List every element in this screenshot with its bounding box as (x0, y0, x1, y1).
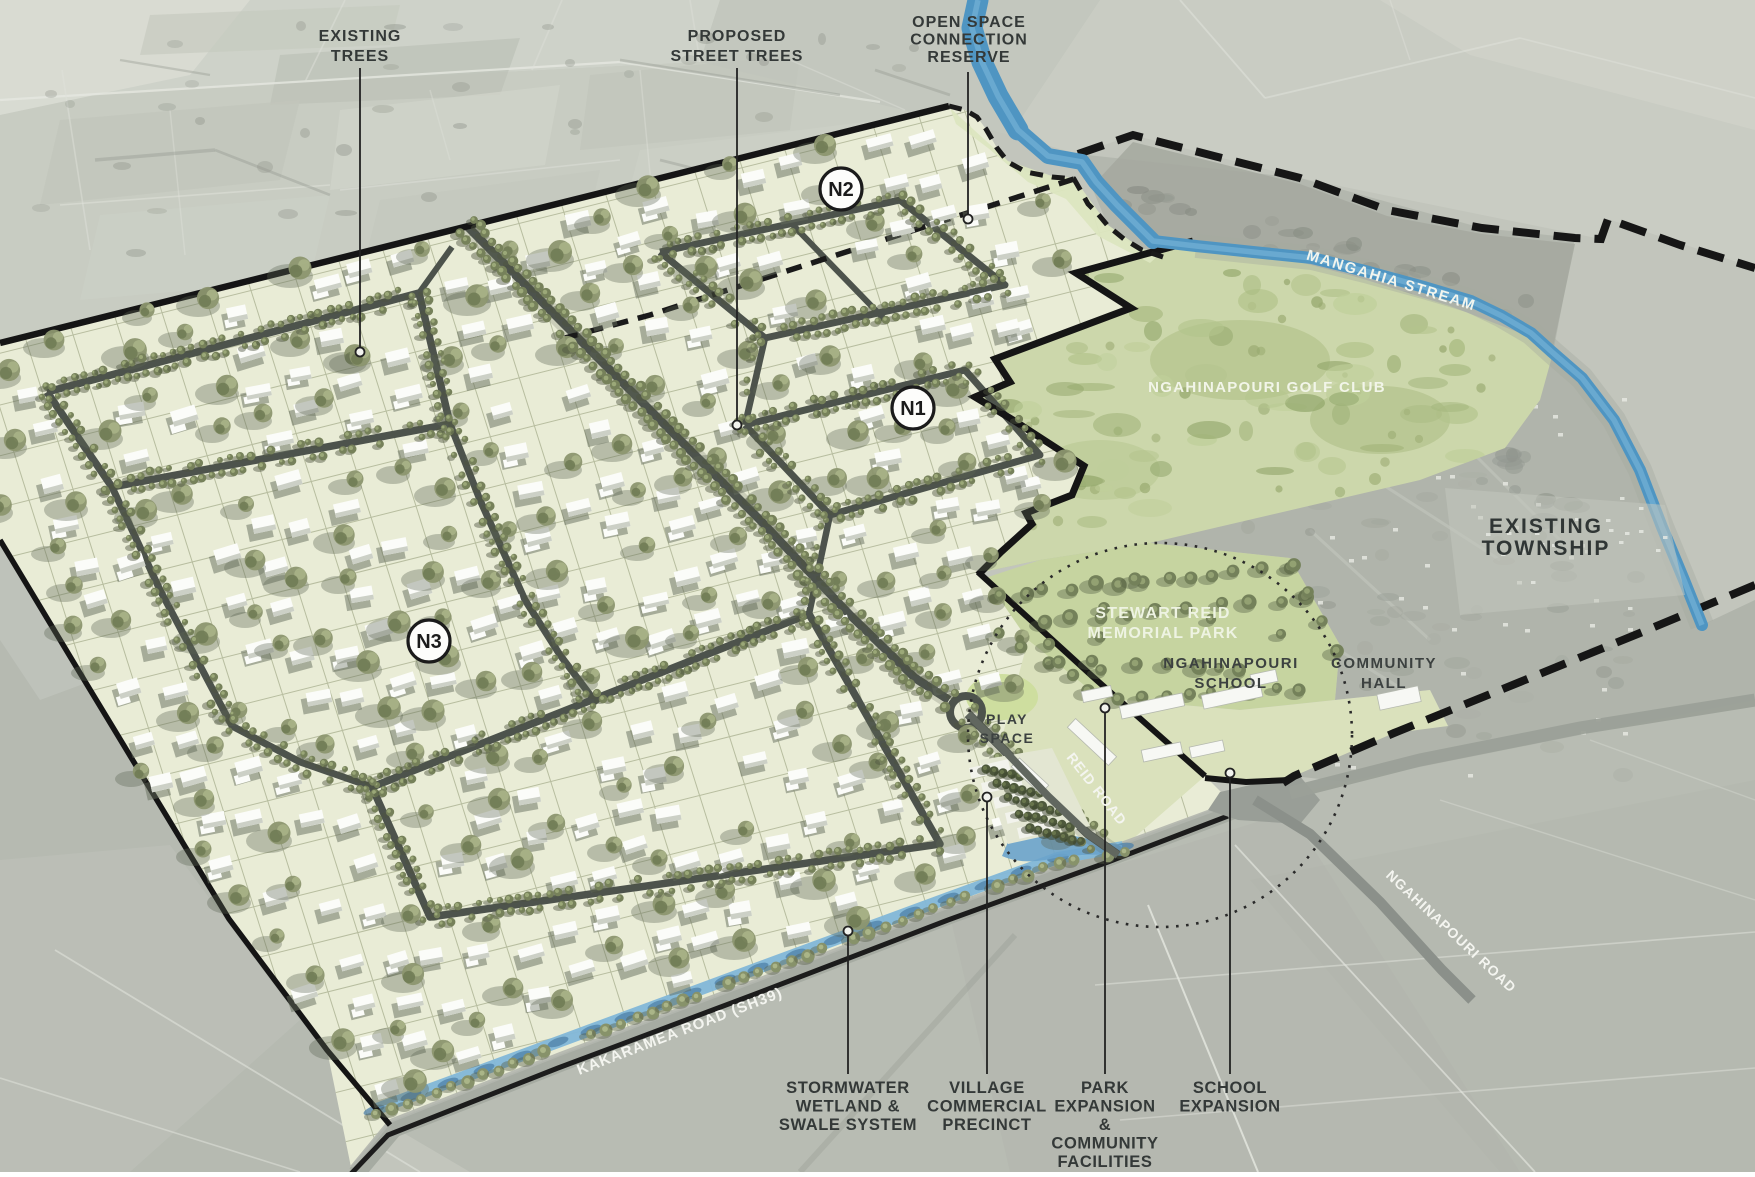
svg-text:EXISTING: EXISTING (319, 28, 402, 45)
svg-text:EXPANSION: EXPANSION (1179, 1098, 1280, 1116)
svg-text:NGAHINAPOURI GOLF CLUB: NGAHINAPOURI GOLF CLUB (1148, 379, 1386, 396)
svg-text:PRECINCT: PRECINCT (942, 1116, 1031, 1134)
svg-text:MEMORIAL PARK: MEMORIAL PARK (1087, 625, 1238, 642)
svg-text:VILLAGE: VILLAGE (949, 1079, 1025, 1097)
svg-text:HALL: HALL (1361, 675, 1407, 692)
svg-text:TREES: TREES (331, 48, 389, 65)
svg-text:SWALE SYSTEM: SWALE SYSTEM (779, 1116, 917, 1134)
svg-text:PLAY: PLAY (986, 711, 1028, 727)
svg-text:NGAHINAPOURI: NGAHINAPOURI (1163, 655, 1299, 672)
svg-text:CONNECTION: CONNECTION (910, 32, 1028, 49)
svg-text:EXISTING: EXISTING (1489, 515, 1603, 538)
svg-text:N3: N3 (416, 631, 442, 653)
svg-text:RESERVE: RESERVE (927, 49, 1010, 66)
svg-text:FACILITIES: FACILITIES (1058, 1153, 1153, 1171)
svg-text:STREET TREES: STREET TREES (671, 48, 804, 65)
svg-text:&: & (1099, 1116, 1112, 1134)
svg-text:TOWNSHIP: TOWNSHIP (1482, 537, 1611, 560)
svg-text:EXPANSION: EXPANSION (1054, 1098, 1155, 1116)
svg-text:COMMERCIAL: COMMERCIAL (927, 1098, 1047, 1116)
svg-text:COMMUNITY: COMMUNITY (1331, 655, 1437, 672)
svg-text:PROPOSED: PROPOSED (688, 28, 787, 45)
svg-text:PARK: PARK (1081, 1079, 1129, 1097)
svg-text:SCHOOL: SCHOOL (1193, 1079, 1267, 1097)
svg-text:OPEN SPACE: OPEN SPACE (912, 14, 1026, 31)
svg-text:STORMWATER: STORMWATER (786, 1079, 910, 1097)
svg-text:WETLAND &: WETLAND & (796, 1098, 900, 1116)
svg-text:N1: N1 (900, 398, 926, 420)
svg-text:COMMUNITY: COMMUNITY (1051, 1135, 1158, 1153)
svg-text:SPACE: SPACE (980, 730, 1035, 746)
svg-text:STEWART REID: STEWART REID (1095, 605, 1230, 622)
svg-text:SCHOOL: SCHOOL (1194, 675, 1267, 692)
svg-text:N2: N2 (828, 179, 854, 201)
